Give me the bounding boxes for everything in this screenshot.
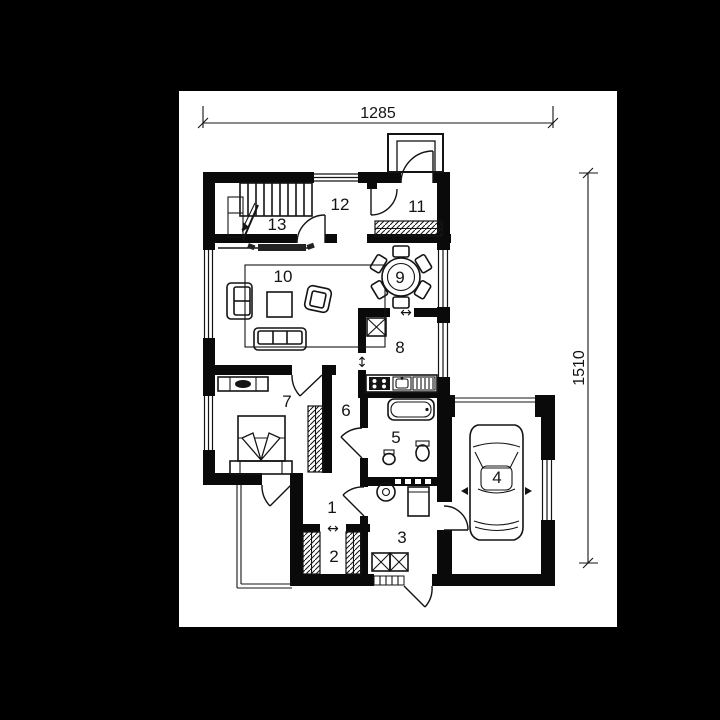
wall-segment [203, 172, 314, 183]
wardrobe-icon [346, 532, 361, 574]
room-label-1: 1 [327, 498, 336, 517]
wardrobe-icon [308, 406, 323, 472]
wardrobe-icon [303, 532, 320, 574]
room-label-8: 8 [395, 338, 404, 357]
room-label-13: 13 [268, 215, 287, 234]
floor-plan-canvas: 1285 1510 [0, 0, 720, 720]
wall-segment [203, 338, 215, 396]
wall-segment [367, 183, 377, 189]
opening-arrow-h: ↔ [327, 521, 339, 537]
wall-segment [414, 308, 437, 317]
wall-segment [203, 234, 297, 243]
screenshot-root: 1285 1510 [0, 0, 720, 720]
wall-segment [443, 395, 455, 417]
wall-segment [360, 458, 368, 487]
wardrobe-icon [375, 221, 442, 236]
room-label-11: 11 [408, 197, 426, 216]
wall-segment [360, 398, 368, 428]
wall-segment [322, 365, 336, 375]
room-label-5: 5 [391, 428, 400, 447]
threshold-icon [374, 576, 404, 585]
wall-segment [535, 395, 555, 417]
room-label-9: 9 [395, 268, 404, 287]
opening-arrow-h: ↔ [400, 305, 412, 321]
wall-segment [366, 392, 437, 398]
wall-segment [432, 574, 555, 586]
room-label-7: 7 [282, 392, 291, 411]
wall-segment [437, 307, 450, 323]
dimension-width-label: 1285 [360, 105, 396, 122]
wall-segment [358, 308, 366, 353]
room-label-6: 6 [341, 401, 350, 420]
wall-segment [292, 574, 374, 586]
wall-segment [541, 417, 555, 460]
room-label-12: 12 [331, 195, 350, 214]
opening-arrow-v: ↕ [356, 355, 368, 371]
wall-segment [437, 172, 450, 250]
vent-wall [368, 477, 437, 486]
wall-segment [437, 530, 452, 574]
room-label-4: 4 [492, 468, 501, 487]
wall-segment [303, 524, 320, 532]
stove-icon [369, 377, 390, 390]
wall-segment [437, 417, 452, 502]
wall-segment [541, 520, 555, 574]
room-label-2: 2 [329, 547, 338, 566]
wall-segment [290, 473, 303, 586]
wall-segment [203, 450, 215, 473]
room-label-3: 3 [397, 528, 406, 547]
wall-segment [325, 234, 337, 243]
dimension-height-label: 1510 [571, 350, 588, 386]
room-label-10: 10 [274, 267, 293, 286]
wall-segment [215, 365, 292, 375]
wall-segment [358, 370, 366, 398]
wall-segment [358, 172, 401, 183]
wall-segment [346, 524, 370, 532]
